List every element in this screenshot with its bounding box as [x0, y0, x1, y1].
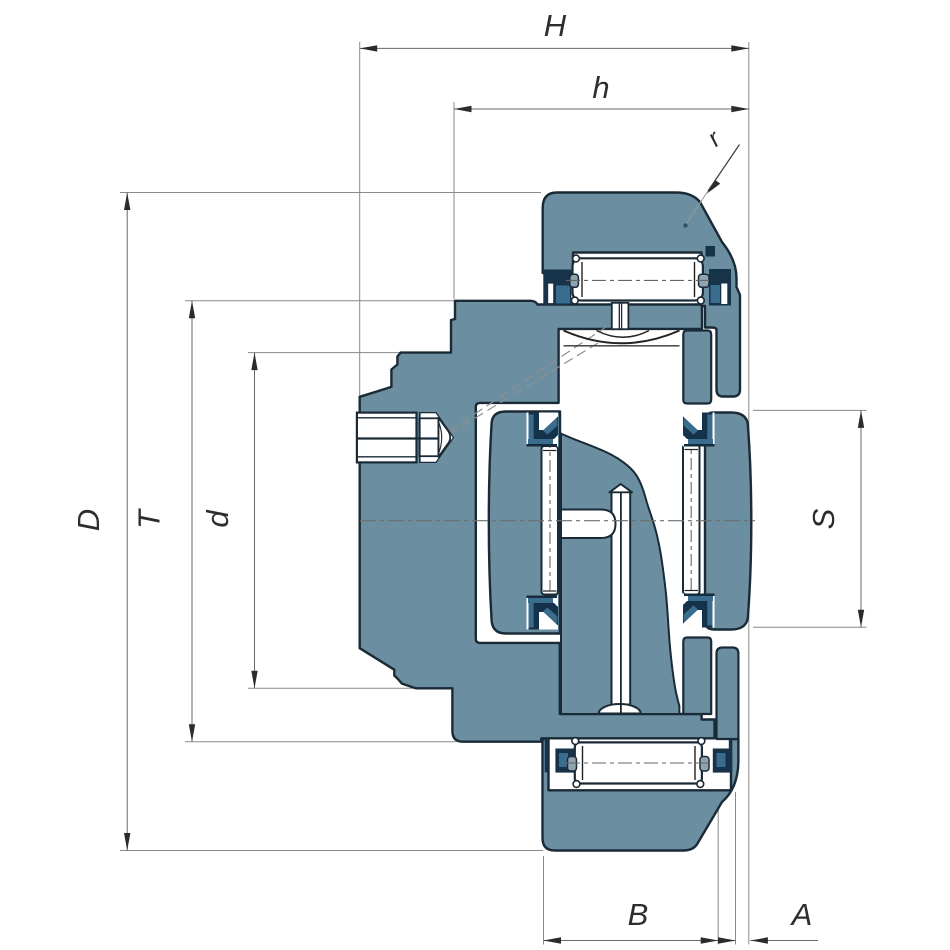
svg-text:S: S [806, 508, 841, 529]
svg-text:T: T [132, 508, 167, 529]
svg-text:h: h [592, 70, 609, 105]
svg-text:d: d [200, 509, 235, 528]
svg-text:D: D [71, 509, 106, 531]
svg-text:B: B [628, 897, 649, 932]
svg-text:A: A [790, 897, 813, 932]
svg-text:H: H [544, 8, 567, 43]
